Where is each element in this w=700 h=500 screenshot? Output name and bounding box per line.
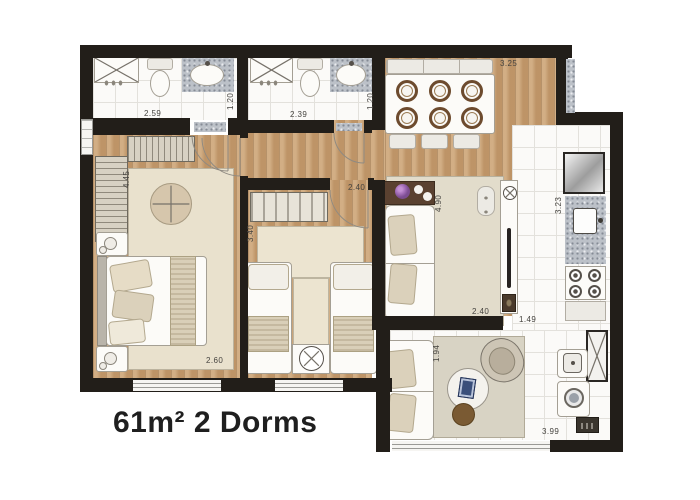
floor-plan-canvas: 2.59 1.20 2.39 1.20 3.25 4.45 2.60 2.40 … bbox=[0, 0, 700, 500]
bed-pillow bbox=[248, 264, 289, 290]
burner-icon bbox=[588, 285, 601, 298]
dim-dining-width: 3.25 bbox=[500, 59, 517, 68]
wall-bath2-bottom-a bbox=[248, 120, 334, 133]
wall-left bbox=[80, 45, 93, 392]
wall-bottom-left bbox=[80, 378, 392, 392]
round-ottoman bbox=[150, 183, 192, 225]
counter-object bbox=[502, 294, 516, 312]
window-balcony bbox=[392, 441, 550, 451]
window-master bbox=[133, 380, 221, 391]
dim-master-width: 2.60 bbox=[206, 356, 223, 365]
sofa-cushion bbox=[387, 263, 417, 305]
wall-balcony-left bbox=[376, 316, 390, 452]
dim-bathroom1-width: 2.59 bbox=[144, 109, 161, 118]
floor-pouf bbox=[452, 403, 475, 426]
wardrobe-top-master bbox=[127, 136, 195, 162]
kitchen-faucet-dot bbox=[598, 218, 603, 223]
flower-vase-icon bbox=[395, 184, 410, 199]
bed-blanket bbox=[248, 316, 289, 352]
sofa-cushion bbox=[386, 393, 417, 434]
dining-chair bbox=[421, 134, 448, 149]
dim-bedroom2-length: 3.40 bbox=[246, 225, 255, 242]
door-threshold-bath2 bbox=[336, 123, 362, 131]
wall-master-bed2-upper bbox=[240, 118, 248, 138]
dim-bathroom2-width: 2.39 bbox=[290, 110, 307, 119]
vanity-sink-2 bbox=[336, 64, 366, 86]
kitchen-sink bbox=[573, 208, 597, 234]
dining-chair bbox=[389, 134, 416, 149]
plate-icon bbox=[429, 80, 451, 102]
washer-drum-icon bbox=[569, 393, 579, 403]
kitchen-counter-lower bbox=[565, 301, 606, 321]
dim-kitchen-length: 3.23 bbox=[554, 197, 563, 214]
dim-kitchen-width: 1.49 bbox=[519, 315, 536, 324]
dim-balcony-depth: 1.94 bbox=[432, 345, 441, 362]
burner-icon bbox=[569, 269, 582, 282]
dim-balcony-width: 3.99 bbox=[542, 427, 559, 436]
dim-bathroom1-depth: 1.20 bbox=[226, 93, 235, 110]
wall-kitchen-top bbox=[556, 112, 612, 125]
plan-title: 61m² 2 Dorms bbox=[113, 406, 317, 440]
toilet-tank-2 bbox=[297, 58, 323, 70]
window-ledge-dining bbox=[566, 59, 575, 113]
decor-plate-icon bbox=[414, 185, 423, 194]
dining-chair bbox=[453, 134, 480, 149]
dim-living-width: 2.40 bbox=[472, 307, 489, 316]
dining-bench bbox=[386, 59, 493, 74]
wall-bath-divider bbox=[237, 58, 248, 120]
towel-hooks-icon-2 bbox=[258, 78, 280, 88]
wall-top bbox=[80, 45, 572, 58]
plate-icon bbox=[461, 107, 483, 129]
wall-bed2-top-a bbox=[248, 178, 330, 190]
bed-blanket bbox=[333, 316, 374, 352]
toilet-tank-1 bbox=[147, 58, 173, 70]
bed-pillow bbox=[333, 264, 374, 290]
water-heater bbox=[576, 417, 599, 433]
vanity-sink-1 bbox=[190, 64, 224, 86]
towel-hooks-icon-1 bbox=[103, 78, 125, 88]
tub-drain-dot bbox=[571, 361, 575, 365]
lamp-icon bbox=[99, 246, 107, 254]
dim-bathroom2-depth: 1.20 bbox=[366, 93, 375, 110]
wall-bath1-master-b bbox=[228, 118, 240, 135]
dim-master-length: 4.45 bbox=[122, 171, 131, 188]
utility-cabinet bbox=[586, 330, 608, 382]
bar-stool bbox=[477, 186, 495, 216]
wardrobe-left-master bbox=[95, 156, 128, 242]
wall-bath2-bottom-b bbox=[364, 120, 372, 133]
fan-icon bbox=[299, 346, 324, 371]
wall-master-bed2-lower bbox=[240, 176, 248, 378]
toilet-bowl-1 bbox=[150, 70, 170, 97]
decor-plate-icon bbox=[423, 192, 432, 201]
wall-bottom-right bbox=[550, 440, 623, 452]
refrigerator bbox=[563, 152, 605, 194]
faucet-dot-2 bbox=[349, 61, 354, 66]
plate-icon bbox=[429, 107, 451, 129]
faucet-dot-1 bbox=[205, 61, 210, 66]
sofa-cushion bbox=[387, 214, 417, 256]
counter-edge-bar bbox=[507, 228, 511, 288]
window-bedroom2 bbox=[275, 380, 343, 391]
wardrobe-bedroom2 bbox=[250, 192, 328, 222]
dim-bedroom2-width: 2.40 bbox=[348, 183, 365, 192]
bed-pillow bbox=[111, 289, 155, 322]
book-on-table bbox=[458, 377, 477, 399]
wall-right bbox=[610, 112, 623, 452]
dim-living-length: 4.90 bbox=[434, 195, 443, 212]
bed-pillow bbox=[108, 318, 146, 346]
wall-bath1-master-a bbox=[93, 118, 190, 135]
lamp-icon bbox=[99, 362, 107, 370]
burner-icon bbox=[588, 269, 601, 282]
shaft-niche bbox=[81, 119, 93, 155]
counter-sink-icon bbox=[503, 186, 517, 200]
burner-icon bbox=[569, 285, 582, 298]
plate-icon bbox=[461, 80, 483, 102]
wall-bed2-living bbox=[372, 180, 385, 330]
bedroom2-rug-column bbox=[293, 278, 329, 346]
plate-icon bbox=[396, 107, 418, 129]
wall-living-balcony bbox=[376, 316, 503, 330]
toilet-bowl-2 bbox=[300, 70, 320, 97]
plate-icon bbox=[396, 80, 418, 102]
door-threshold-bath1 bbox=[194, 122, 226, 132]
bed-runner bbox=[170, 256, 196, 346]
